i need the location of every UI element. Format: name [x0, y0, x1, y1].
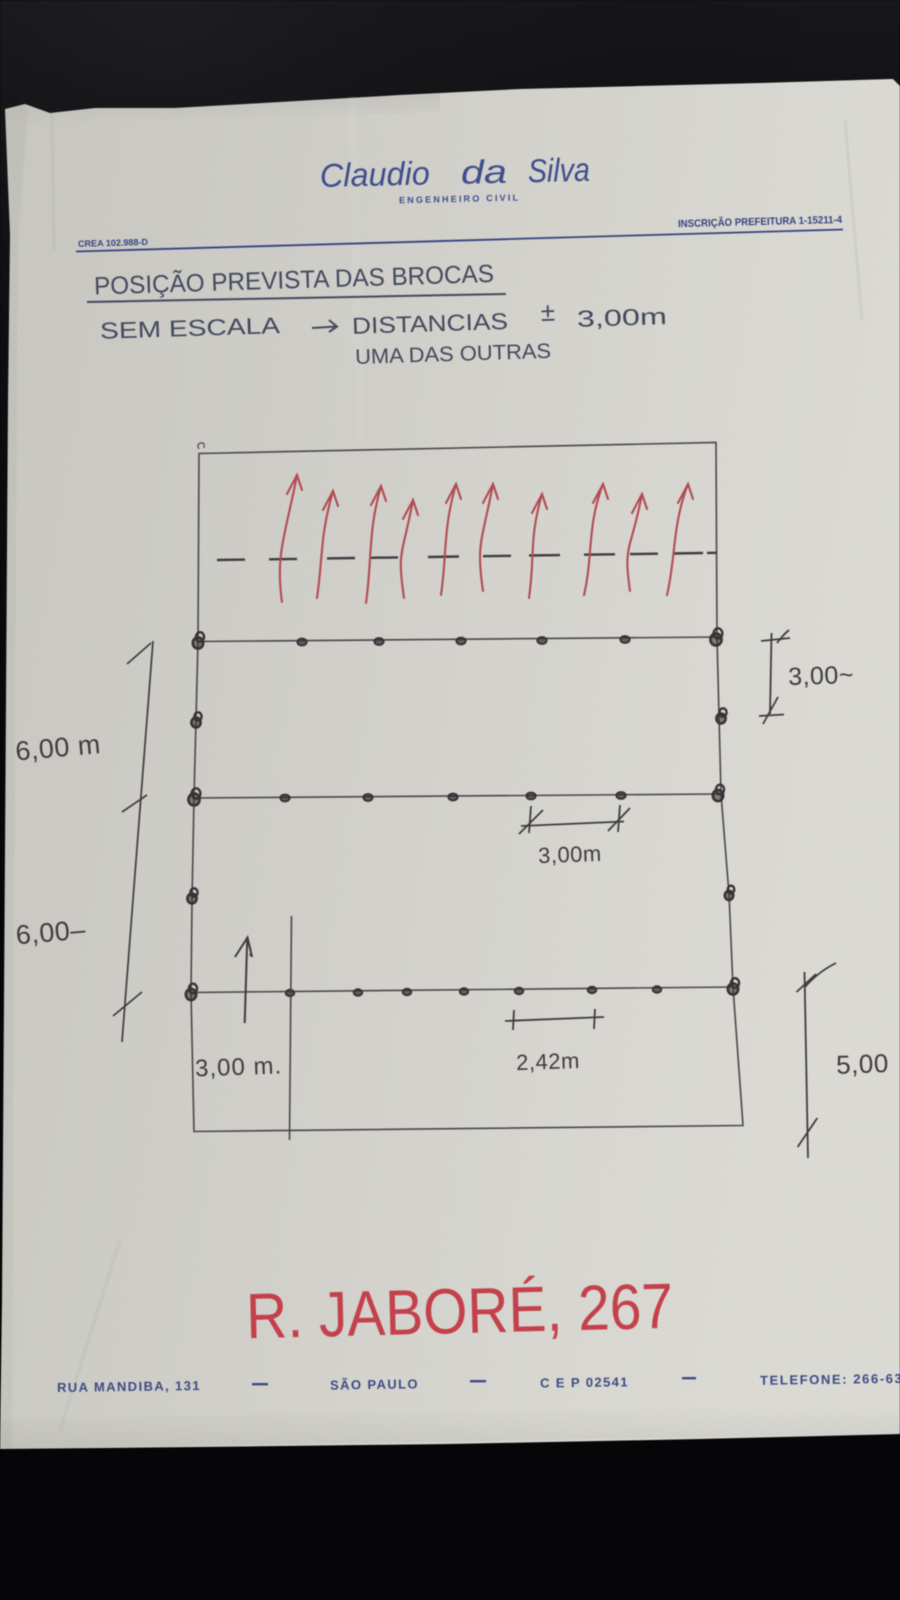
svg-text:3,00~: 3,00~: [788, 661, 855, 691]
svg-text:C E P 02541: C E P 02541: [540, 1374, 629, 1390]
svg-text:5,00: 5,00: [836, 1048, 890, 1080]
svg-text:Silva: Silva: [527, 151, 590, 189]
svg-text:2,42m: 2,42m: [516, 1048, 580, 1075]
svg-text:da: da: [460, 153, 507, 191]
svg-text:SÃO PAULO: SÃO PAULO: [330, 1376, 419, 1392]
svg-text:RUA MANDIBA, 131: RUA MANDIBA, 131: [57, 1378, 201, 1395]
svg-text:DISTANCIAS: DISTANCIAS: [352, 308, 509, 339]
svg-text:R. JABORÉ, 267: R. JABORÉ, 267: [245, 1270, 674, 1352]
svg-text:CREA 102.988-D: CREA 102.988-D: [78, 237, 149, 249]
svg-text:6,00–: 6,00–: [15, 914, 87, 950]
svg-text:3,00m: 3,00m: [576, 303, 667, 332]
svg-text:±: ±: [540, 297, 555, 327]
svg-text:TELEFONE: 266-63: TELEFONE: 266-63: [760, 1371, 900, 1388]
svg-text:Claudio: Claudio: [319, 154, 430, 193]
svg-text:3,00 m.: 3,00 m.: [195, 1052, 283, 1082]
svg-text:3,00m: 3,00m: [538, 841, 602, 868]
